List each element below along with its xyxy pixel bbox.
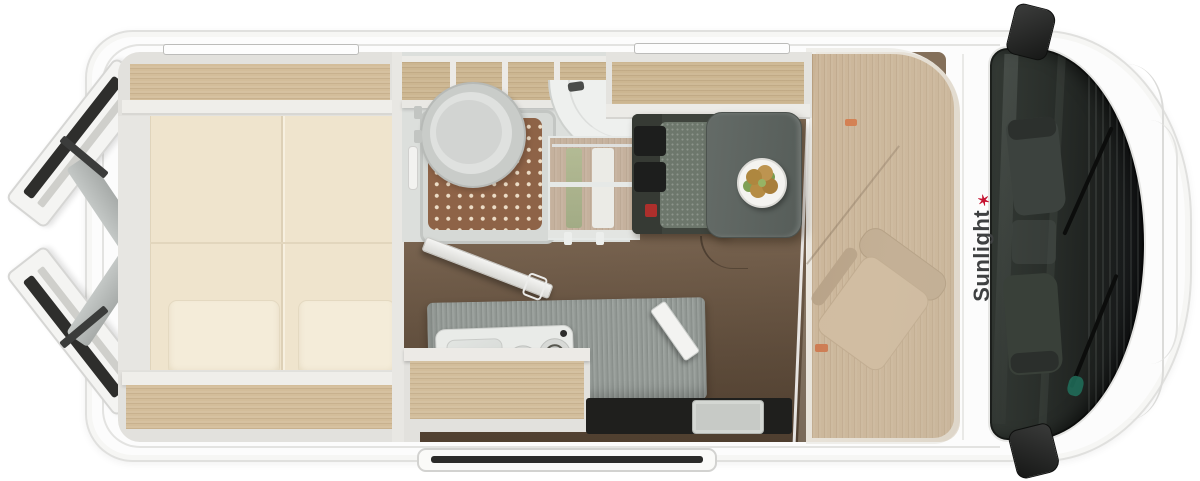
dinner-plate <box>737 158 787 208</box>
bench-headrest-1 <box>634 126 666 156</box>
overhead-shelf-rear-bottom-lip <box>122 372 418 385</box>
kitchen-lower-shelf <box>404 348 590 432</box>
cab-console-through-glass <box>1012 220 1056 264</box>
glass-teal-reflection <box>1066 374 1086 397</box>
wardrobe-hook-2 <box>596 232 604 245</box>
overhead-shelf-rear-bottom <box>118 370 420 442</box>
bed-pillow-left <box>168 300 280 376</box>
toilet-hinge-tab-2 <box>414 130 422 143</box>
b-pillar-seam <box>962 54 964 440</box>
campervan-floorplan: Sunlight✶ <box>0 0 1200 481</box>
cubby-top-lip <box>402 56 630 62</box>
stove-knob <box>560 330 567 337</box>
exterior-entry-step-tread <box>431 456 703 463</box>
kitchen-lower-shelf-wood <box>410 361 584 419</box>
kitchen-lower-shelf-lip <box>404 348 590 361</box>
wardrobe-hook-1 <box>564 232 572 245</box>
overhead-shelf-dinette-wood <box>612 62 804 106</box>
exterior-entry-step <box>417 448 717 472</box>
overhead-shelf-rear-top <box>118 52 395 116</box>
overhead-shelf-rear-bottom-wood <box>126 385 414 429</box>
towel-rail <box>408 146 418 190</box>
bench-seatbelt-buckle <box>645 204 657 217</box>
brand-logo: Sunlight✶ <box>967 178 997 318</box>
cab-seat-top-headrest <box>1007 116 1057 141</box>
toilet-hinge-tab-1 <box>414 106 422 119</box>
cab-seat-through-glass-bottom <box>1003 272 1064 376</box>
toilet-lid-inner <box>436 100 502 164</box>
wardrobe-glass-door <box>548 136 640 240</box>
wardrobe <box>548 136 640 240</box>
roof-rail-front <box>634 43 790 54</box>
bed-seam-horizontal <box>150 242 395 244</box>
roof-rail-rear <box>163 44 359 55</box>
overhead-shelf-rear-top-wood <box>130 64 390 104</box>
hood-seam-inner <box>1150 120 1178 364</box>
overhead-shelf-dinette <box>606 52 812 118</box>
wardrobe-sill <box>548 230 640 238</box>
bench-headrest-2 <box>634 162 666 192</box>
cab-seat-through-glass-top <box>1005 116 1067 217</box>
cab-seat-bottom-headrest <box>1010 350 1059 373</box>
bed-seam-vertical <box>281 108 283 380</box>
roof-cutaway-overlay <box>798 52 960 442</box>
brand-logo-text: Sunlight <box>969 210 994 302</box>
sunlight-bird-icon: ✶ <box>969 190 1001 211</box>
plate-food <box>758 179 766 187</box>
overhead-shelf-rear-top-lip <box>122 100 392 115</box>
bed-pillow-right <box>298 300 396 376</box>
entry-step <box>692 400 764 434</box>
windshield <box>988 46 1146 442</box>
wardrobe-door-crossbar <box>550 182 638 187</box>
